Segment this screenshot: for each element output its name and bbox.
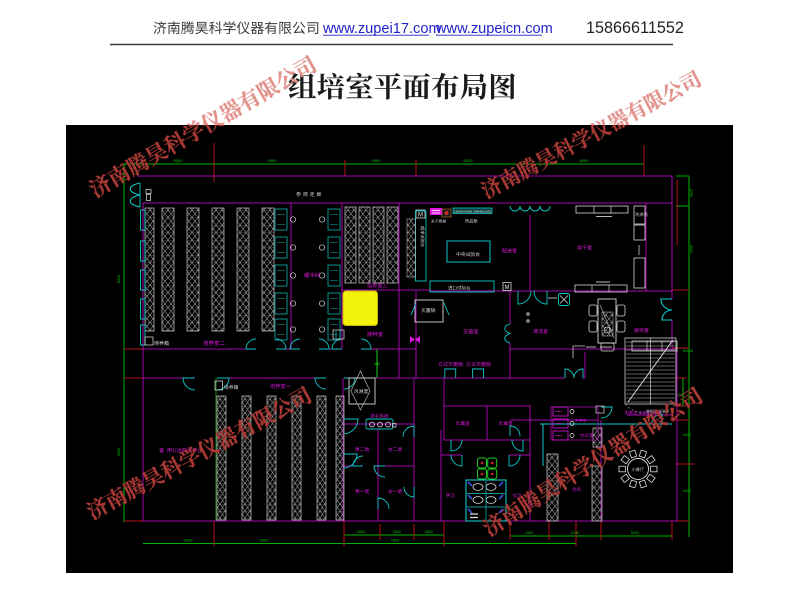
svg-text:2800: 2800 — [425, 530, 433, 534]
svg-text:6000: 6000 — [464, 158, 474, 163]
svg-text:5000: 5000 — [631, 531, 639, 535]
svg-text:7800: 7800 — [391, 538, 401, 543]
svg-text:8000: 8000 — [580, 158, 590, 163]
svg-text:5000: 5000 — [117, 275, 121, 283]
svg-text:5000: 5000 — [184, 538, 194, 543]
svg-text:5000: 5000 — [372, 158, 382, 163]
svg-text:www.zupeicn.com: www.zupeicn.com — [435, 21, 553, 37]
svg-text:www.zupei17.com: www.zupei17.com — [322, 21, 441, 37]
svg-text:4000: 4000 — [683, 433, 691, 437]
svg-text:1500: 1500 — [525, 531, 533, 535]
svg-text:2500: 2500 — [393, 530, 401, 534]
svg-text:2100: 2100 — [571, 531, 579, 535]
svg-text:5000: 5000 — [174, 158, 184, 163]
svg-text:9000: 9000 — [260, 538, 270, 543]
svg-text:5000: 5000 — [117, 448, 121, 456]
svg-text:M: M — [418, 213, 423, 219]
svg-text:5000: 5000 — [268, 158, 278, 163]
svg-text:824.16: 824.16 — [683, 349, 693, 353]
svg-text:2500: 2500 — [357, 530, 365, 534]
svg-text:2700: 2700 — [689, 189, 693, 197]
svg-text:15063414066 15866611552: 15063414066 15866611552 — [454, 209, 492, 213]
svg-text:M: M — [505, 285, 510, 291]
svg-text:15866611552: 15866611552 — [586, 19, 684, 37]
svg-text:6000: 6000 — [689, 245, 693, 253]
svg-text:4000: 4000 — [683, 489, 691, 493]
